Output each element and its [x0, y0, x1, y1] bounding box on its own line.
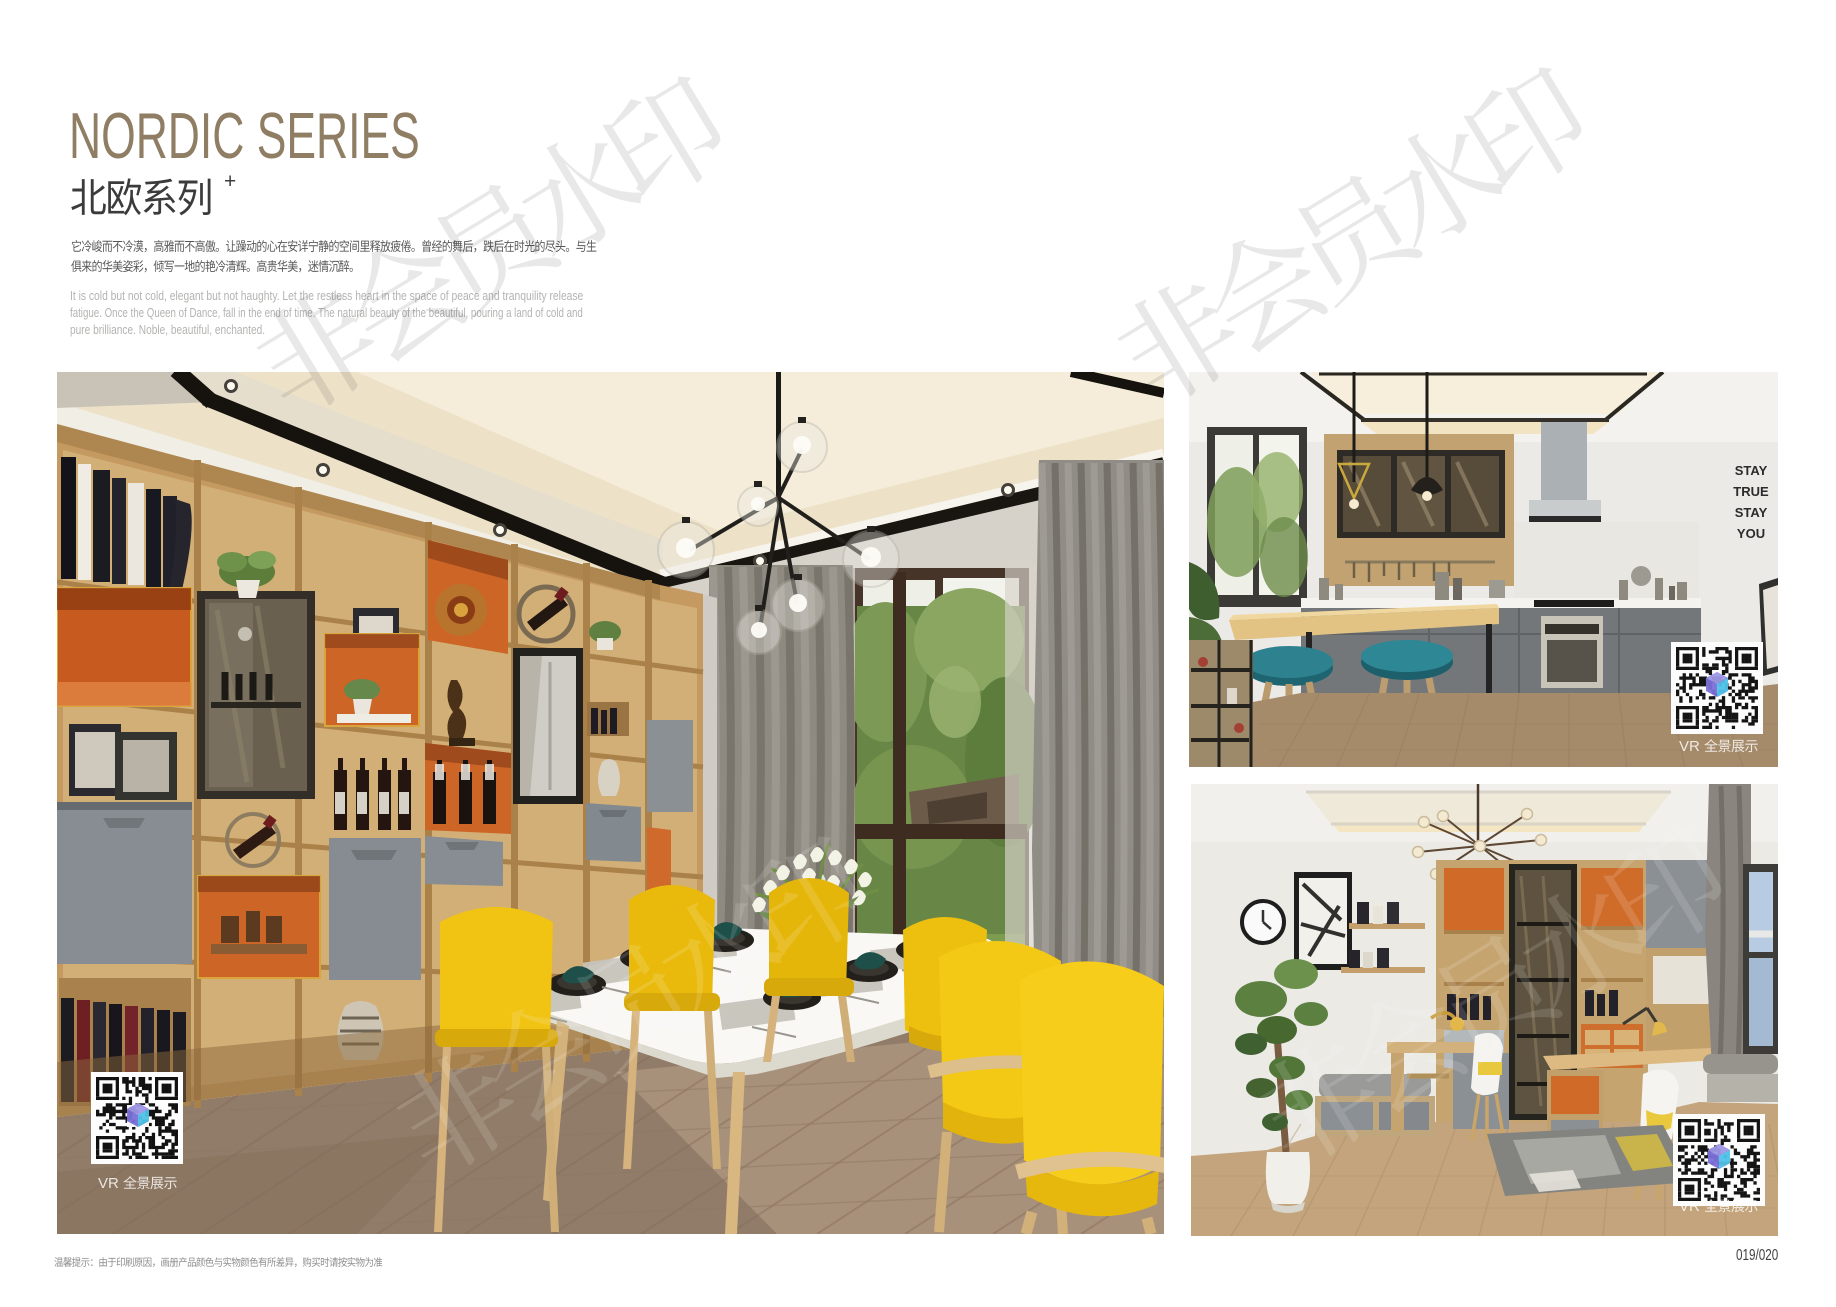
- svg-text:STAY: STAY: [1735, 463, 1768, 478]
- svg-text:STAY: STAY: [1735, 505, 1768, 520]
- svg-text:YOU: YOU: [1737, 526, 1765, 541]
- svg-text:TRUE: TRUE: [1733, 484, 1769, 499]
